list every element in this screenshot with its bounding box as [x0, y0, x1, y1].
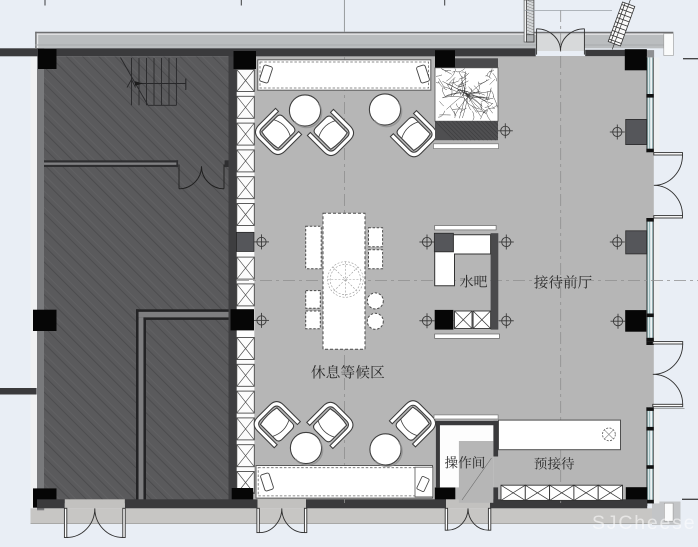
- svg-text:SJCheese: SJCheese: [592, 512, 696, 534]
